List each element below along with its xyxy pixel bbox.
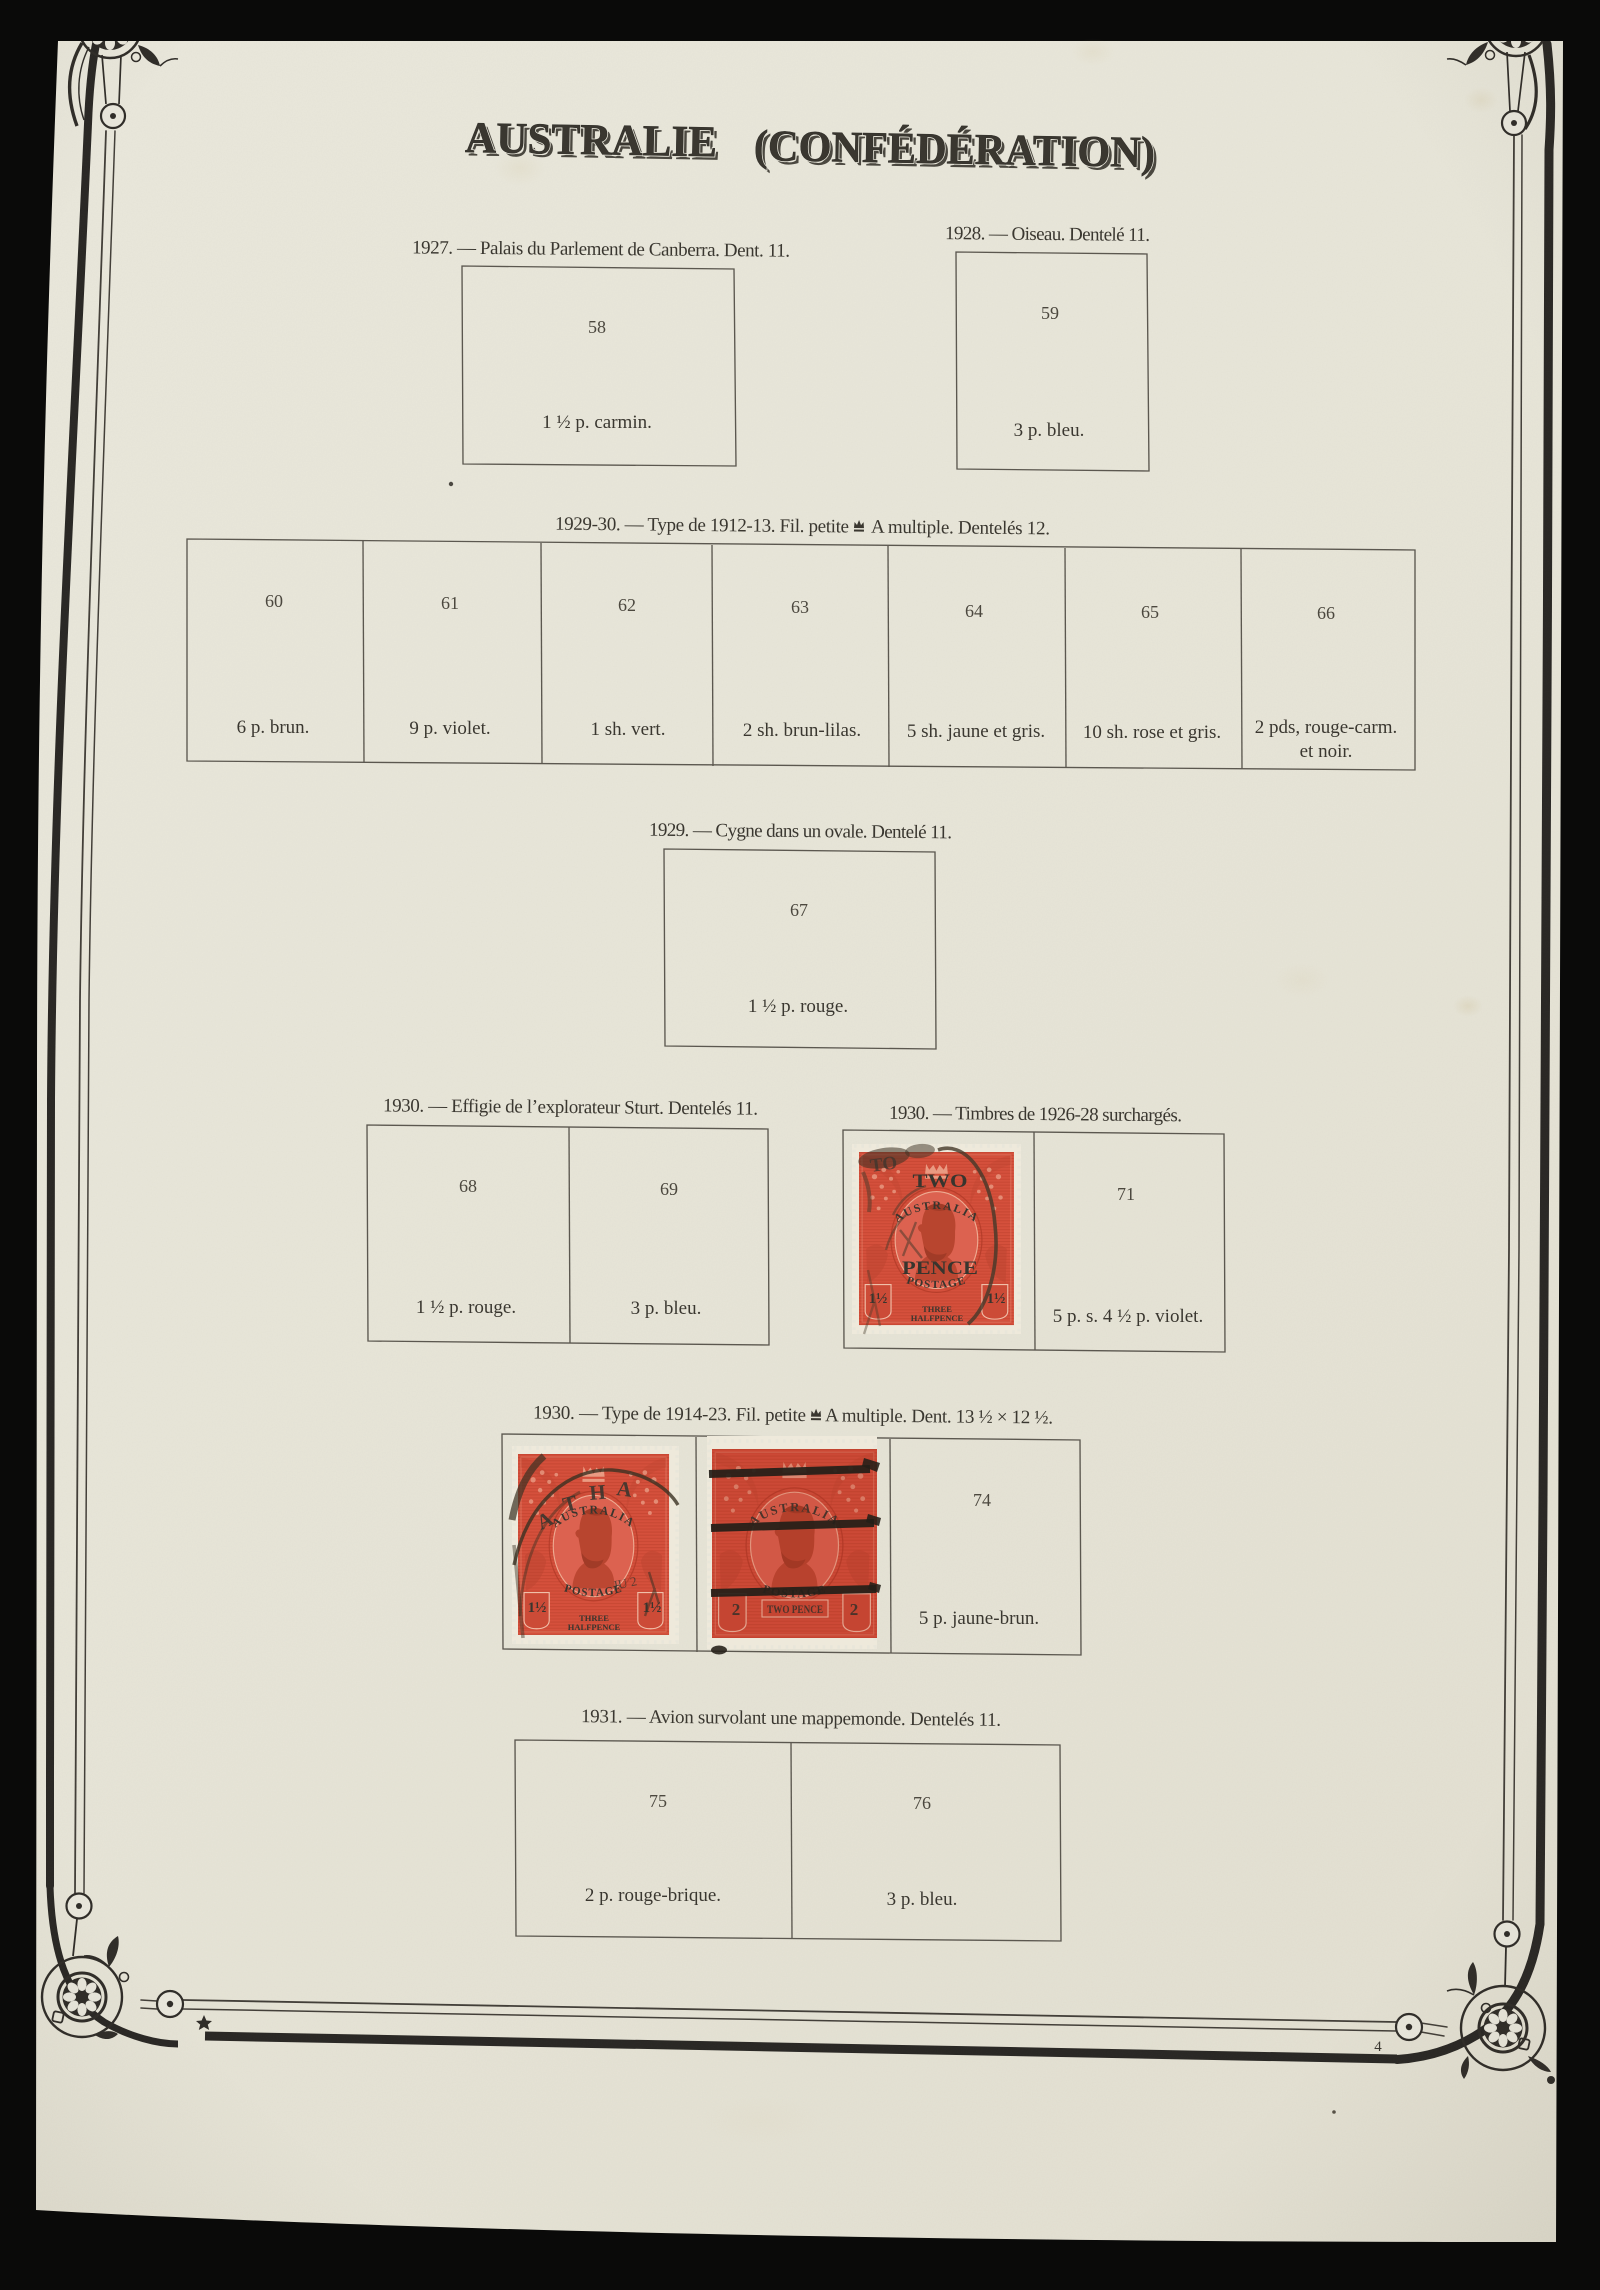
svg-text:PENCE: PENCE bbox=[902, 1258, 978, 1279]
svg-text:H: H bbox=[588, 1480, 606, 1505]
svg-text:TO: TO bbox=[869, 1152, 899, 1177]
svg-text:HALFPENCE: HALFPENCE bbox=[568, 1622, 621, 1632]
svg-text:HALFPENCE: HALFPENCE bbox=[911, 1313, 964, 1323]
svg-text:1½: 1½ bbox=[528, 1600, 547, 1616]
svg-text:1½: 1½ bbox=[869, 1291, 888, 1307]
